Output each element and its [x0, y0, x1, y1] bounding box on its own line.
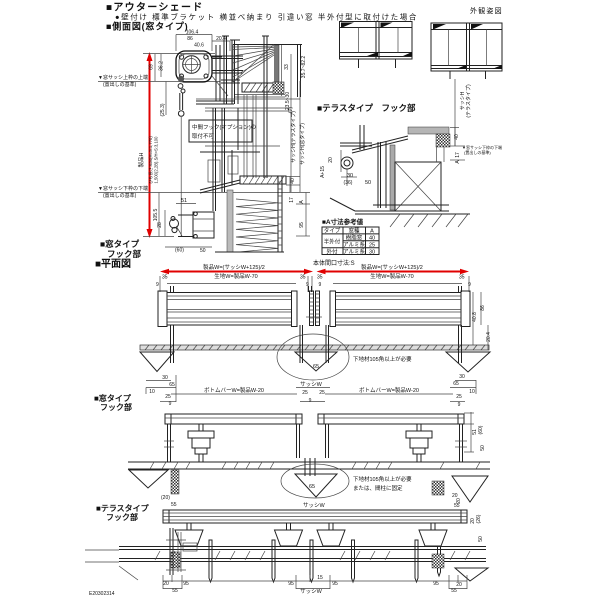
svg-text:30: 30	[369, 250, 375, 256]
svg-text:■側面図(窓タイプ): ■側面図(窓タイプ)	[106, 21, 188, 32]
svg-text:(置出しの基準): (置出しの基準)	[103, 192, 137, 199]
svg-text:20: 20	[452, 493, 458, 499]
svg-text:■テラスタイプ: ■テラスタイプ	[96, 503, 150, 513]
svg-text:▼窓サッシ上枠の上端: ▼窓サッシ上枠の上端	[98, 74, 148, 81]
svg-text:A+15: A+15	[320, 166, 326, 178]
svg-text:65: 65	[313, 364, 319, 370]
svg-text:9: 9	[468, 282, 471, 288]
svg-text:(テラスタイプ): (テラスタイプ)	[465, 84, 472, 118]
svg-text:30: 30	[162, 375, 168, 381]
svg-text:50: 50	[478, 536, 484, 542]
svg-text:■平面図: ■平面図	[95, 258, 131, 270]
svg-text:■窓タイプ: ■窓タイプ	[94, 393, 132, 403]
svg-text:外付: 外付	[326, 248, 338, 256]
svg-text:35: 35	[162, 275, 168, 281]
svg-text:製品W=(サッシW+125)/2: 製品W=(サッシW+125)/2	[361, 263, 423, 271]
svg-text:25: 25	[165, 394, 171, 400]
svg-text:フック部: フック部	[106, 512, 138, 522]
svg-text:95: 95	[433, 581, 439, 587]
svg-text:(36): (36)	[344, 180, 353, 186]
svg-text:55: 55	[454, 503, 460, 509]
svg-text:サッシW: サッシW	[300, 588, 323, 595]
svg-text:(7): (7)	[288, 107, 294, 113]
svg-text:サッシH(テラスタイプ): サッシH(テラスタイプ)	[290, 111, 297, 163]
svg-text:(60): (60)	[478, 425, 484, 434]
svg-text:10: 10	[149, 389, 155, 395]
svg-text:105.5: 105.5	[153, 209, 159, 222]
svg-text:20: 20	[328, 157, 334, 163]
svg-text:タイプ: タイプ	[324, 227, 341, 235]
svg-text:ボトムバーW=製品W-20: ボトムバーW=製品W-20	[204, 386, 264, 394]
svg-text:69: 69	[149, 64, 155, 70]
svg-text:サッシW: サッシW	[303, 502, 326, 509]
svg-text:アルミ系: アルミ系	[343, 241, 365, 249]
svg-text:51: 51	[181, 198, 187, 204]
svg-text:外観姿図: 外観姿図	[470, 6, 503, 15]
svg-text:■テラスタイプ フック部: ■テラスタイプ フック部	[317, 103, 416, 113]
svg-text:36.2: 36.2	[159, 61, 165, 71]
svg-text:25: 25	[456, 394, 462, 400]
svg-text:9: 9	[309, 398, 312, 404]
svg-text:30: 30	[347, 173, 353, 179]
svg-text:下地材105角以上が必要: 下地材105角以上が必要	[353, 355, 412, 363]
svg-text:(25.3): (25.3)	[160, 103, 166, 116]
svg-text:65: 65	[453, 381, 459, 387]
svg-text:20: 20	[456, 582, 462, 588]
svg-text:95: 95	[332, 581, 338, 587]
svg-text:下地材105角以上が必要: 下地材105角以上が必要	[353, 475, 412, 483]
svg-text:(置出しの基準): (置出しの基準)	[464, 149, 491, 155]
svg-text:86: 86	[187, 36, 193, 42]
svg-text:■窓タイプ: ■窓タイプ	[100, 239, 140, 249]
svg-text:9: 9	[319, 282, 322, 288]
svg-text:35: 35	[300, 275, 306, 281]
svg-text:95: 95	[299, 222, 305, 228]
svg-text:9: 9	[156, 282, 159, 288]
svg-text:35.7~82.2: 35.7~82.2	[301, 56, 307, 79]
svg-text:アルミ系: アルミ系	[343, 248, 365, 256]
svg-text:●壁付け 標準ブラケット 横並べ納まり 引違い窓 半外付型に: ●壁付け 標準ブラケット 横並べ納まり 引違い窓 半外付型に取付けた場合	[115, 12, 418, 22]
svg-text:35: 35	[317, 275, 323, 281]
svg-text:フック部: フック部	[100, 402, 132, 412]
svg-text:55: 55	[172, 588, 178, 594]
svg-text:50: 50	[365, 180, 371, 186]
svg-text:▼窓サッシ下枠の下端: ▼窓サッシ下枠の下端	[98, 185, 148, 192]
svg-text:25: 25	[302, 390, 308, 396]
svg-text:半外付: 半外付	[324, 238, 341, 246]
svg-text:本体間口寸法:S: 本体間口寸法:S	[313, 259, 355, 267]
svg-text:50: 50	[200, 248, 206, 254]
svg-text:1,500(2,2B).S/H=S:3,100: 1,500(2,2B).S/H=S:3,100	[154, 136, 159, 184]
svg-text:25: 25	[369, 243, 375, 249]
svg-text:17: 17	[455, 152, 461, 158]
svg-text:95: 95	[288, 581, 294, 587]
svg-text:40: 40	[369, 236, 375, 242]
svg-text:55: 55	[451, 588, 457, 594]
svg-text:A: A	[370, 229, 374, 235]
svg-text:ボトムバーW=製品W-20: ボトムバーW=製品W-20	[359, 386, 419, 394]
svg-text:33: 33	[284, 64, 290, 70]
svg-text:樹脂窓: 樹脂窓	[346, 234, 363, 242]
svg-text:17: 17	[289, 197, 295, 203]
svg-text:フック部: フック部	[107, 249, 142, 259]
svg-text:(26): (26)	[476, 514, 482, 523]
svg-text:(置出しの基準): (置出しの基準)	[103, 81, 137, 88]
svg-text:40: 40	[290, 178, 296, 184]
svg-text:30: 30	[459, 374, 465, 380]
svg-text:E20302314: E20302314	[89, 591, 115, 597]
svg-text:取付不可: 取付不可	[192, 132, 215, 140]
svg-text:25: 25	[319, 390, 325, 396]
svg-text:95: 95	[183, 581, 189, 587]
svg-text:製品H: 製品H	[137, 152, 145, 167]
svg-text:■A寸法参考値: ■A寸法参考値	[322, 217, 364, 226]
svg-text:または、間柱に固定: または、間柱に固定	[353, 484, 403, 492]
svg-text:20: 20	[163, 581, 169, 587]
svg-text:55: 55	[171, 502, 177, 508]
svg-text:9: 9	[458, 402, 461, 408]
svg-text:65: 65	[309, 484, 315, 490]
svg-text:10: 10	[469, 389, 475, 395]
svg-text:50: 50	[480, 445, 486, 451]
svg-text:15: 15	[317, 575, 323, 581]
svg-text:20.4: 20.4	[486, 332, 492, 342]
svg-text:(20): (20)	[161, 495, 170, 501]
svg-text:65: 65	[169, 382, 175, 388]
svg-text:35: 35	[459, 275, 465, 281]
svg-text:(60): (60)	[175, 248, 184, 254]
svg-text:サッシW: サッシW	[300, 381, 323, 388]
svg-text:窓種: 窓種	[348, 227, 360, 235]
svg-text:40.6: 40.6	[194, 43, 204, 49]
svg-text:サッシH(窓タイプ): サッシH(窓タイプ)	[299, 123, 306, 165]
svg-text:生地W=製品W-70: 生地W=製品W-70	[370, 272, 413, 280]
svg-text:中間フック(オプション)の: 中間フック(オプション)の	[192, 123, 256, 131]
svg-text:28: 28	[157, 222, 163, 228]
svg-text:製品W=(サッシW+125)/2: 製品W=(サッシW+125)/2	[203, 263, 265, 271]
svg-text:9: 9	[169, 401, 172, 407]
svg-text:生地W=製品W-70: 生地W=製品W-70	[214, 272, 257, 280]
